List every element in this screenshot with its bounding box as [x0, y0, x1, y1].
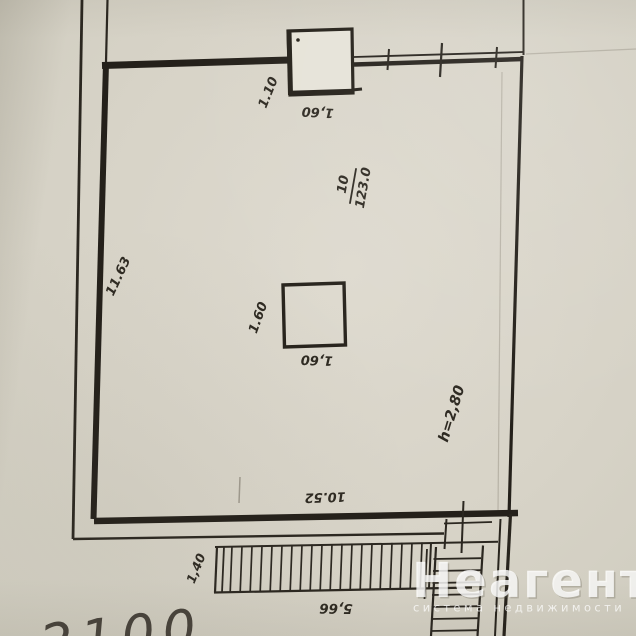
- room-number: 10: [335, 174, 353, 194]
- vent-shaft: [288, 29, 362, 95]
- stair-treads-1: [230, 542, 422, 592]
- watermark-tagline: система недвижимости: [413, 601, 625, 615]
- column: [283, 283, 346, 347]
- dim-top-inset: 1.10: [256, 75, 282, 110]
- margin-note: 2100: [37, 598, 207, 636]
- room-label: 10 123.0: [333, 163, 375, 210]
- dim-shaft-width: 1,60: [301, 103, 334, 120]
- shaft-dot: [296, 38, 300, 42]
- dim-column-height: 1.60: [246, 300, 271, 335]
- dim-left-wall: 11.63: [103, 255, 134, 299]
- floor-plan-canvas: 10 123.0 1.10 1,60 11.63 1.60 1,60 h=2,8…: [0, 0, 636, 636]
- dim-stair-width: 1,40: [183, 551, 209, 585]
- dim-column-width: 1,60: [301, 351, 334, 367]
- paper-creases: [239, 49, 636, 512]
- dim-ceiling-height: h=2,80: [436, 384, 468, 444]
- dim-bottom-wall: 10.52: [304, 488, 346, 504]
- watermark: Неагент Неагент система недвижимости: [412, 553, 636, 615]
- doorway-stub: [444, 501, 492, 553]
- floor-plan-scan: 10 123.0 1.10 1,60 11.63 1.60 1,60 h=2,8…: [0, 0, 636, 636]
- dim-stair-length: 5,66: [319, 600, 353, 617]
- room-walls: [94, 52, 524, 521]
